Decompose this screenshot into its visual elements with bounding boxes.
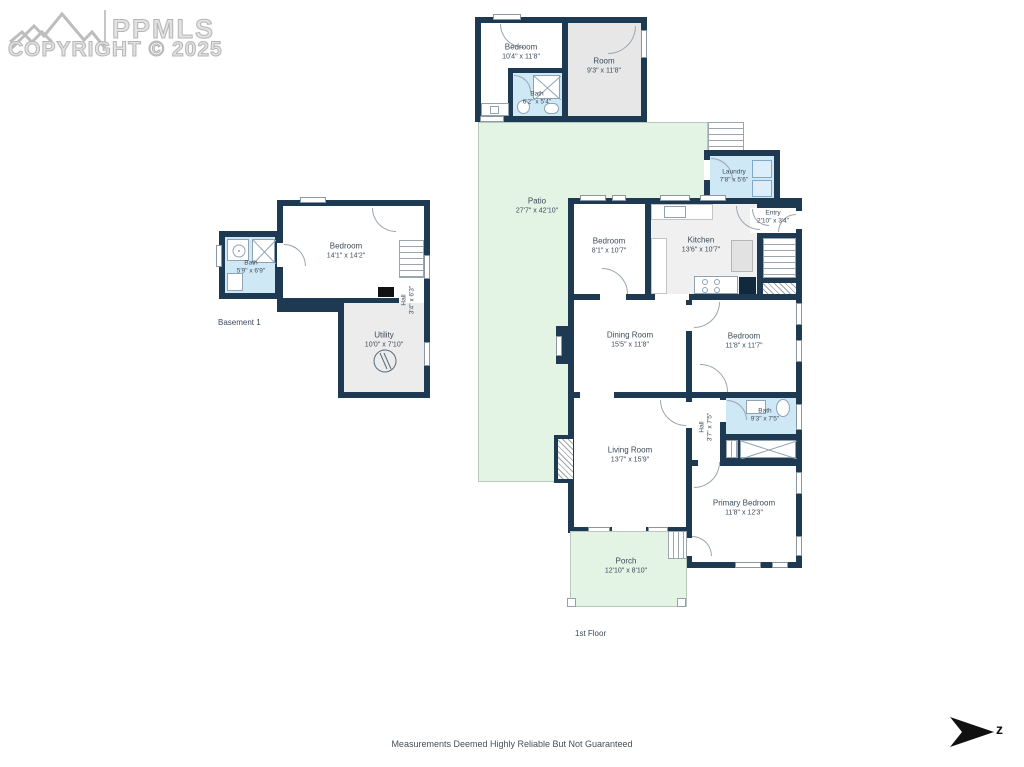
porch-post-icon [567,598,576,607]
window [300,197,326,203]
window [580,195,606,201]
window [796,303,802,325]
room-label-primary: Primary Bedroom 11'8" x 12'3" [713,498,775,517]
exterior-stairs [708,122,744,153]
porch-step [668,531,687,559]
window [641,30,647,58]
door-opening [600,294,626,300]
door-opening [686,402,692,428]
room-label-basement-bath: Bath 5'9" x 6'9" [237,260,265,277]
door-opening [655,294,689,300]
washer-icon [752,160,772,178]
room-label-bath: Bath 9'3" x 7'5" [751,408,779,425]
closet-shelves [726,440,738,458]
furnace-icon [372,348,398,374]
room-label-upper-room: Room 9'3" x 11'8" [587,56,621,75]
room-label-dining: Dining Room 15'5" x 11'8" [607,330,653,349]
window [493,14,521,20]
vanity-icon [227,239,249,261]
room-label-basement-bedroom: Bedroom 14'1" x 14'2" [327,241,365,260]
window [424,255,430,279]
door-opening [686,305,692,331]
first-floor-label: 1st Floor [575,629,606,638]
fridge-icon [731,240,753,272]
logo-copyright: COPYRIGHT © 2025 [8,38,223,62]
window [796,340,802,362]
room-label-right-bedroom: Bedroom 11'8" x 11'7" [725,331,762,350]
room-label-living: Living Room 13'7" x 15'9" [608,445,652,464]
room-label-basement-utility: Utility 10'0" x 7'10" [365,330,403,349]
window [772,562,788,568]
room-label-upper-bath: Bath 6'2" x 5'4" [523,91,551,108]
window [480,116,504,122]
room-label-porch: Porch 12'10" x 8'10" [605,556,647,575]
chimney-icon [378,287,394,297]
room-label-hall: Hall 3'7" x 7'5" [699,413,716,441]
linen-closet-icon [740,440,796,458]
room-label-kitchen: Kitchen 13'6" x 10'7" [682,235,720,254]
north-arrow-icon [948,715,996,749]
sink-basin-icon [490,106,499,114]
window [796,404,802,430]
door-opening [796,211,802,229]
window [660,195,690,201]
porch-post-icon [677,598,686,607]
door-opening [277,243,283,267]
room-label-upper-bedroom: Bedroom 10'4" x 11'8" [502,42,540,61]
room-label-basement-hall: Hall 3'4" x 6'3" [401,286,418,314]
north-arrow-label: z [996,721,1003,737]
door-opening [580,392,614,398]
interior-stairs [763,238,796,278]
basement-floor-label: Basement 1 [218,318,261,327]
window [612,195,626,201]
room-label-entry: Entry 2'10" x 3'4" [757,210,789,227]
fireplace-icon [558,439,573,479]
window [735,562,761,568]
kitchen-sink-icon [664,206,686,218]
stove-icon [694,276,738,294]
door-opening [720,400,726,422]
window [424,342,430,366]
window [556,336,562,356]
window [796,472,802,494]
room-label-mid-bedroom: Bedroom 8'1" x 10'7" [592,236,627,255]
window [700,195,726,201]
door-opening [704,160,710,180]
dryer-icon [752,180,772,197]
chimney-icon [739,277,756,294]
room-label-patio: Patio 27'7" x 42'10" [516,196,558,215]
window [796,536,802,556]
room-label-laundry: Laundry 7'8" x 5'6" [720,169,748,186]
stairs-under-closet [763,283,796,294]
basement-stairs [399,240,424,278]
disclaimer-text: Measurements Deemed Highly Reliable But … [0,739,1024,749]
floor-plan-page: PPMLS COPYRIGHT © 2025 [0,0,1024,767]
window [216,245,222,267]
kitchen-cabinets [651,238,667,294]
